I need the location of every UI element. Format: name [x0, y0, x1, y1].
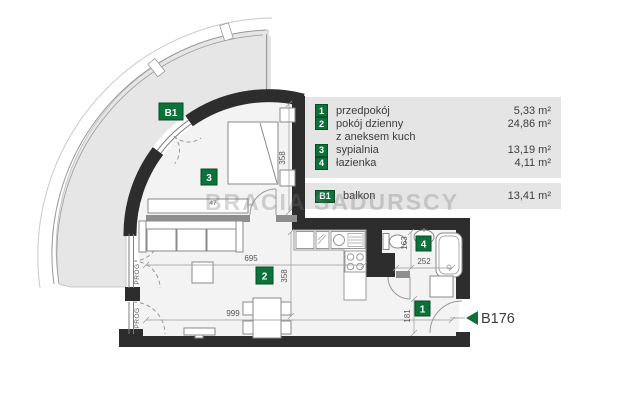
badge-bedroom-label: 3 [206, 173, 212, 184]
legend: 1 przedpokój 5,33 m² 2 pokój dzienny 24,… [305, 97, 561, 178]
legend-badge-3: 3 [315, 144, 328, 157]
legend-room-name: sypialnia [336, 144, 508, 156]
dining-chair [281, 302, 291, 315]
dim-label-999: 999 [226, 309, 240, 318]
badge-living-label: 2 [262, 272, 268, 283]
dim-label-695: 695 [244, 254, 258, 263]
fridge [296, 232, 314, 249]
badge-bathroom: 4 [416, 236, 431, 251]
dim-label-358-living: 358 [280, 269, 289, 283]
legend-badge-empty [315, 130, 328, 143]
stove [345, 251, 366, 272]
dining-chair [281, 321, 291, 334]
legend-room-area: 13,19 m² [508, 144, 551, 156]
legend-balcony-row: B1 balkon 13,41 m² [305, 183, 561, 209]
unit-code-label: B176 [481, 311, 515, 327]
legend-row: z aneksem kuch [315, 130, 551, 143]
badge-bathroom-label: 4 [421, 240, 427, 251]
legend-badge-1: 1 [315, 104, 328, 117]
dining-table [253, 298, 281, 338]
kitchen-sink [331, 232, 365, 249]
hallway-divider-stub [396, 271, 410, 278]
legend-row: 3 sypialnia 13,19 m² [315, 144, 551, 157]
badge-living: 2 [256, 267, 273, 284]
threshold-label: PRÓG [132, 263, 141, 284]
dining-chair [243, 321, 253, 334]
sofa-cushion [207, 229, 236, 251]
dim-label-181: 181 [403, 309, 412, 323]
kitchen-bath-wall-elbow [366, 253, 395, 277]
bedroom-living-divider-stub [276, 215, 297, 222]
badge-balcony: B1 [159, 103, 183, 120]
legend-room-area: 5,33 m² [514, 105, 551, 117]
unit-marker: B176 [450, 311, 515, 327]
legend-room-name: z aneksem kuch [336, 131, 551, 143]
bathtub [436, 233, 462, 277]
dim-label-252: 252 [417, 257, 431, 266]
badge-bedroom: 3 [201, 169, 217, 185]
threshold-label: PRÓG [132, 307, 141, 328]
legend-room-area: 4,11 m² [515, 157, 551, 169]
floorplan-page: 695 999 358 358 163 252 [0, 0, 620, 400]
bottom-wall [119, 336, 470, 347]
left-wall-pier [125, 287, 140, 301]
tv-stand [184, 328, 215, 335]
legend-badge-b1: B1 [315, 190, 335, 203]
wardrobe [148, 199, 248, 213]
top-wall-right-wing [292, 218, 470, 230]
legend-row: 1 przedpokój 5,33 m² [315, 104, 551, 117]
legend-row: 2 pokój dzienny 24,86 m² [315, 117, 551, 130]
legend-badge-2: 2 [315, 117, 328, 130]
bottom-left-corner [119, 329, 143, 347]
sofa-back [139, 221, 243, 229]
legend-room-name: pokój dzienny [336, 118, 508, 130]
sofa-armrest [139, 221, 146, 252]
legend-room-area: 13,41 m² [508, 190, 551, 202]
legend-room-name: przedpokój [336, 105, 514, 117]
bed [228, 122, 278, 184]
tv-stand-foot [195, 335, 203, 338]
legend-room-name: balkon [343, 190, 508, 202]
legend-badge-4: 4 [315, 157, 328, 170]
legend-room-area: 24,86 m² [508, 118, 551, 130]
legend-room-name: łazienka [336, 157, 515, 169]
badge-hallway: 1 [415, 301, 430, 316]
sofa-cushion [177, 229, 206, 251]
dim-label-163: 163 [400, 236, 409, 250]
legend-row: B1 balkon 13,41 m² [315, 189, 551, 202]
entrance-arrow-icon [466, 311, 478, 325]
nightstand [280, 170, 295, 186]
sofa-armrest [236, 221, 243, 252]
legend-row: 4 łazienka 4,11 m² [315, 157, 551, 170]
dim-label-47: 47 [209, 200, 217, 207]
dim-label-358-bedroom: 358 [278, 151, 287, 165]
dishwasher [316, 232, 329, 249]
washing-machine [430, 276, 453, 297]
nightstand [280, 108, 295, 122]
kitchen-bath-wall [366, 230, 382, 256]
badge-hallway-label: 1 [420, 305, 426, 316]
badge-balcony-label: B1 [165, 108, 178, 119]
sofa-cushion [147, 229, 176, 251]
dining-chair [243, 302, 253, 315]
